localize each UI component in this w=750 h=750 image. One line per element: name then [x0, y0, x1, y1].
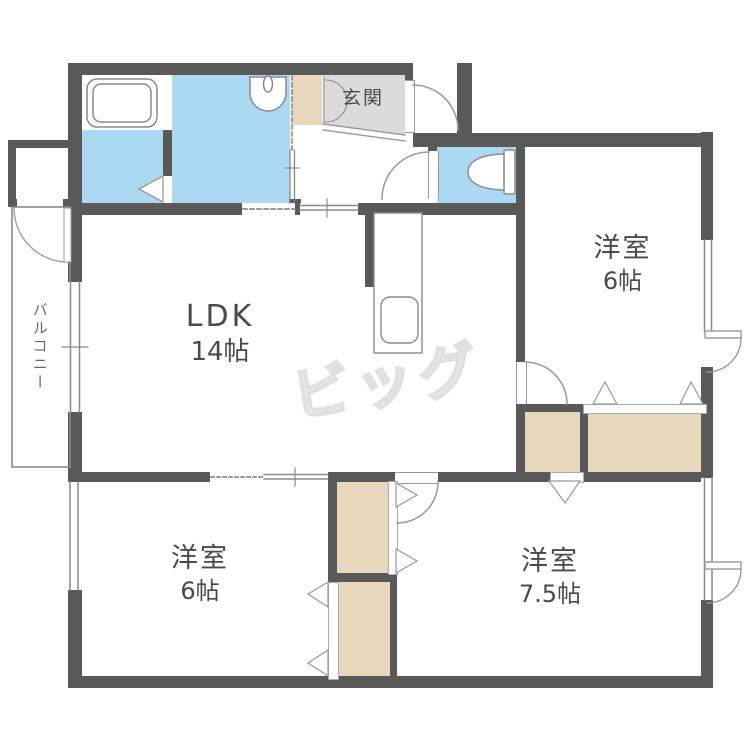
floor-plan: ビッグ: [0, 0, 750, 750]
bedroom-br-name: 洋室: [460, 545, 640, 579]
closet-south-folding-door: [549, 481, 580, 503]
bedroom-tr-size: 6帖: [545, 266, 700, 296]
bedroom-tr-name: 洋室: [545, 232, 700, 266]
label-ldk: LDK 14帖: [140, 298, 300, 368]
closet-bottom-folding-doors: [308, 582, 328, 676]
washbasin-icon: [250, 76, 286, 111]
closet-tr-folding-doors: [593, 382, 703, 404]
balcony-name: バルコニー: [31, 302, 49, 392]
label-entrance: 玄関: [330, 87, 396, 111]
casement-window-tr: [705, 331, 741, 372]
label-balcony: バルコニー: [30, 287, 49, 407]
entrance-name: 玄関: [342, 87, 384, 109]
sliding-door-hall-ldk: [300, 199, 358, 217]
kitchen-sink-icon: [381, 297, 418, 343]
window-bedroom-tr: [701, 240, 713, 332]
ldk-size: 14帖: [140, 336, 300, 369]
bedroom-tr-door-arc: [525, 362, 567, 404]
ldk-name: LDK: [140, 298, 300, 336]
entrance-door-arc: [413, 85, 458, 130]
label-bedroom-bottom-left: 洋室 6帖: [120, 542, 280, 606]
sliding-door-washroom-hall: [285, 76, 299, 203]
toilet-door-arc: [382, 152, 429, 199]
toilet-icon: [468, 150, 515, 194]
balcony-storage-door-arc: [14, 208, 71, 262]
closet-top-folding-doors: [396, 483, 417, 573]
plan-linework: [0, 0, 750, 750]
bedroom-bl-name: 洋室: [120, 542, 280, 576]
window-balcony-ldk: [62, 282, 88, 412]
window-bedroom-bl: [68, 482, 81, 590]
bedroom-br-size: 7.5帖: [460, 579, 640, 609]
bathtub-icon: [87, 79, 157, 127]
bedroom-bl-size: 6帖: [120, 576, 280, 606]
label-bedroom-top-right: 洋室 6帖: [545, 232, 700, 296]
label-bedroom-bottom-right: 洋室 7.5帖: [460, 545, 640, 609]
opening-washroom-ldk: [242, 203, 295, 215]
window-bedroom-br: [701, 478, 713, 600]
sliding-door-bedroom-bl: [210, 468, 328, 486]
bath-folding-door: [139, 176, 163, 202]
